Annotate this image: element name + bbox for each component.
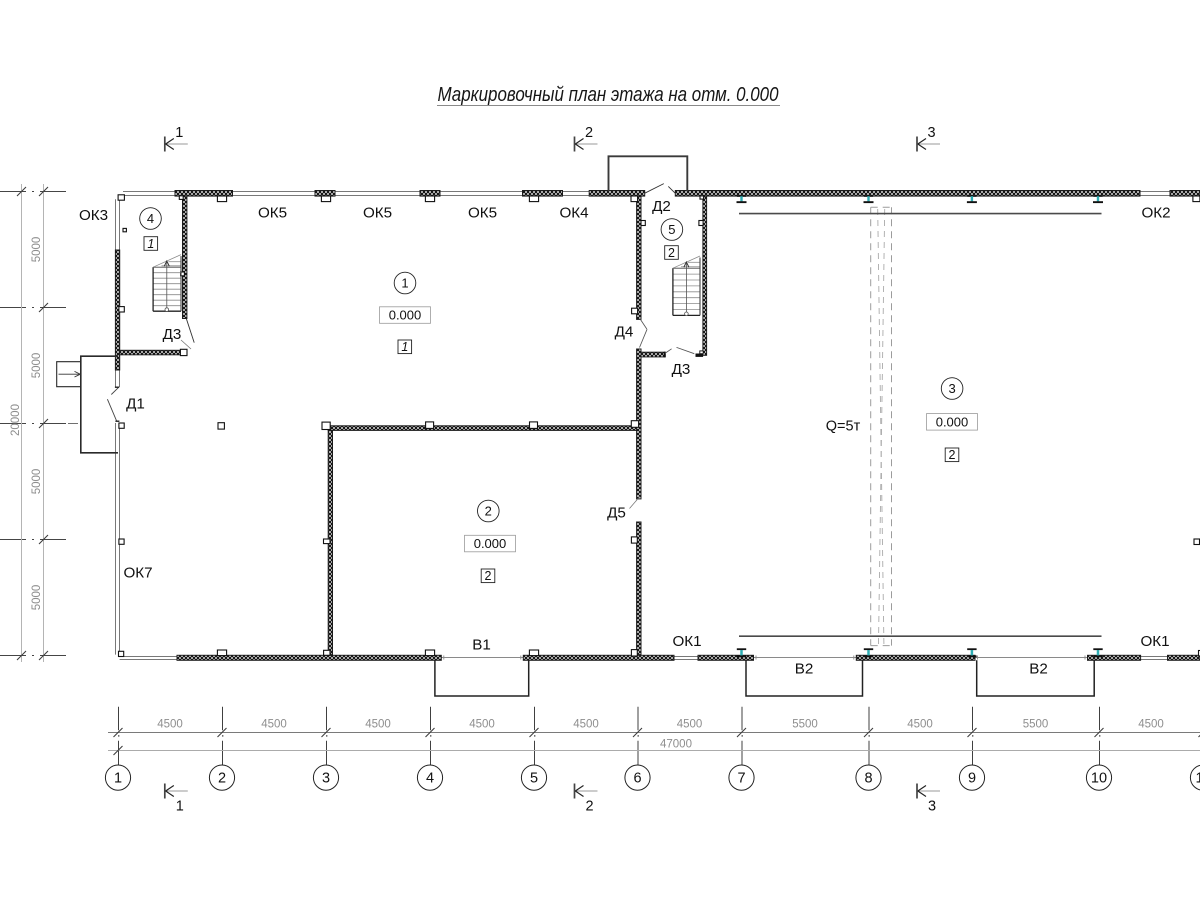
svg-text:ОК4: ОК4 (559, 205, 588, 222)
svg-text:ОК1: ОК1 (1140, 633, 1169, 650)
svg-text:11: 11 (1195, 771, 1200, 787)
svg-text:1: 1 (401, 276, 408, 291)
svg-text:5: 5 (530, 771, 538, 787)
svg-text:2: 2 (585, 125, 593, 141)
svg-text:10: 10 (1091, 771, 1107, 787)
svg-text:3: 3 (928, 799, 936, 815)
svg-text:4500: 4500 (907, 719, 933, 731)
svg-text:2: 2 (485, 569, 492, 583)
svg-text:3: 3 (948, 381, 955, 396)
svg-text:5: 5 (668, 222, 675, 237)
svg-text:6: 6 (633, 771, 641, 787)
svg-text:2: 2 (218, 771, 226, 787)
svg-text:2: 2 (485, 504, 492, 519)
svg-text:ОК7: ОК7 (123, 565, 152, 582)
svg-text:5000: 5000 (31, 237, 43, 263)
svg-text:1: 1 (147, 237, 154, 251)
svg-text:5000: 5000 (31, 353, 43, 379)
svg-text:7: 7 (737, 771, 745, 787)
svg-text:5000: 5000 (31, 469, 43, 495)
svg-text:4500: 4500 (469, 719, 495, 731)
svg-text:5000: 5000 (31, 585, 43, 611)
svg-text:20000: 20000 (10, 404, 22, 436)
svg-text:4500: 4500 (573, 719, 599, 731)
svg-text:0.000: 0.000 (474, 536, 507, 551)
svg-text:4500: 4500 (157, 719, 183, 731)
svg-text:9: 9 (968, 771, 976, 787)
svg-text:5500: 5500 (1023, 719, 1049, 731)
svg-text:3: 3 (322, 771, 330, 787)
svg-text:Д4: Д4 (615, 324, 634, 341)
svg-text:1: 1 (175, 125, 183, 141)
svg-text:ОК5: ОК5 (258, 205, 287, 222)
svg-text:4500: 4500 (677, 719, 703, 731)
svg-text:3: 3 (927, 125, 935, 141)
svg-text:В1: В1 (472, 637, 491, 654)
svg-text:ОК5: ОК5 (363, 205, 392, 222)
svg-text:Q=5т: Q=5т (826, 419, 861, 435)
svg-text:8: 8 (864, 771, 872, 787)
svg-text:ОК1: ОК1 (672, 633, 701, 650)
svg-text:Д3: Д3 (672, 361, 691, 378)
svg-text:1: 1 (401, 340, 408, 354)
svg-text:0.000: 0.000 (389, 308, 422, 323)
svg-text:Д5: Д5 (607, 505, 626, 522)
svg-text:4500: 4500 (365, 719, 391, 731)
svg-text:2: 2 (585, 799, 593, 815)
svg-text:5500: 5500 (792, 719, 818, 731)
svg-text:Маркировочный план этажа на от: Маркировочный план этажа на отм. 0.000 (438, 83, 779, 106)
svg-text:Д2: Д2 (652, 198, 671, 215)
svg-text:1: 1 (114, 771, 122, 787)
svg-text:1: 1 (176, 799, 184, 815)
svg-text:В2: В2 (1029, 661, 1048, 678)
svg-text:4500: 4500 (1138, 719, 1164, 731)
svg-text:Д3: Д3 (163, 326, 182, 343)
svg-text:4: 4 (426, 771, 434, 787)
svg-text:2: 2 (949, 448, 956, 462)
svg-text:4: 4 (147, 211, 154, 226)
svg-text:ОК3: ОК3 (79, 207, 108, 224)
svg-text:В2: В2 (795, 661, 814, 678)
svg-text:ОК2: ОК2 (1141, 205, 1170, 222)
svg-text:2: 2 (668, 246, 675, 260)
svg-text:4500: 4500 (261, 719, 287, 731)
svg-text:47000: 47000 (660, 738, 692, 750)
svg-text:Д1: Д1 (126, 396, 145, 413)
svg-text:ОК5: ОК5 (468, 205, 497, 222)
svg-text:0.000: 0.000 (936, 414, 969, 429)
